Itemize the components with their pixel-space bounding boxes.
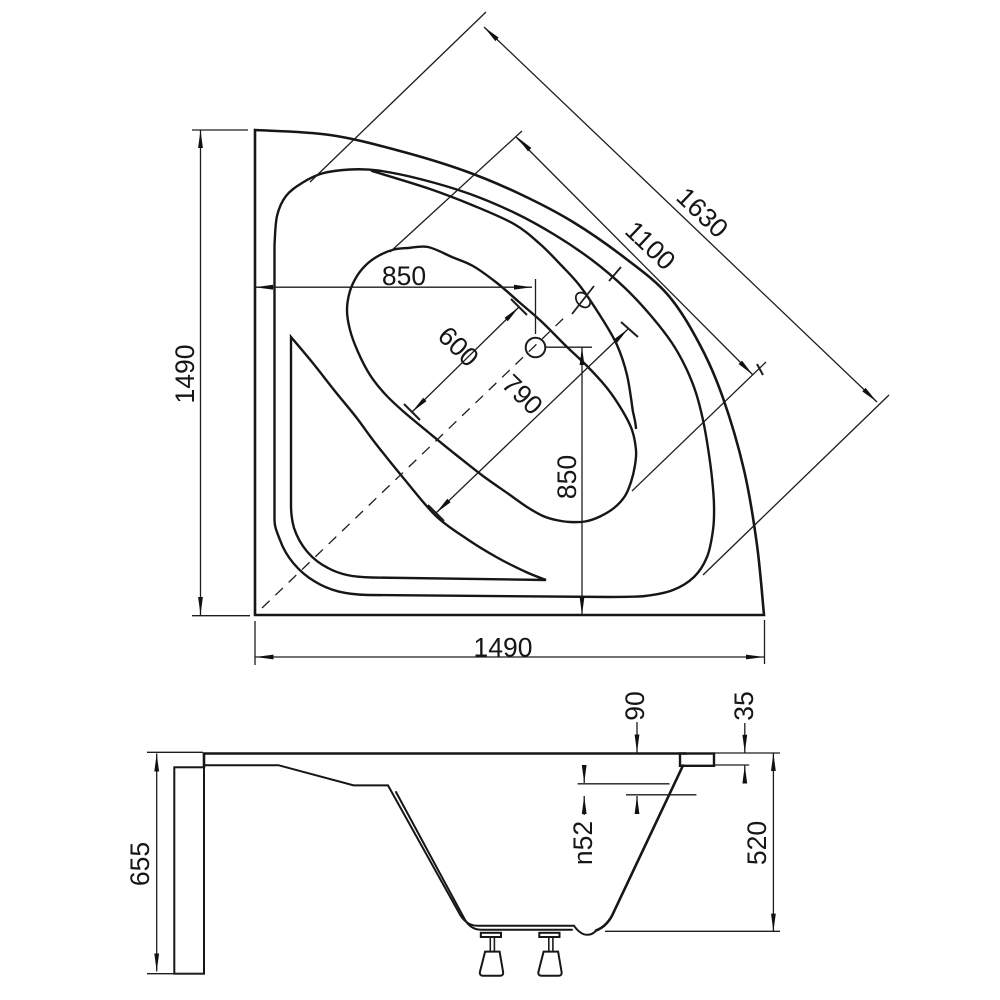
svg-text:1490: 1490 — [474, 633, 533, 663]
svg-text:850: 850 — [382, 261, 426, 291]
svg-text:520: 520 — [742, 821, 772, 865]
svg-text:90: 90 — [620, 691, 650, 720]
svg-text:655: 655 — [125, 842, 155, 886]
svg-text:850: 850 — [552, 455, 582, 499]
svg-text:n52: n52 — [568, 821, 598, 865]
svg-text:1490: 1490 — [170, 345, 200, 404]
svg-text:35: 35 — [729, 691, 759, 720]
